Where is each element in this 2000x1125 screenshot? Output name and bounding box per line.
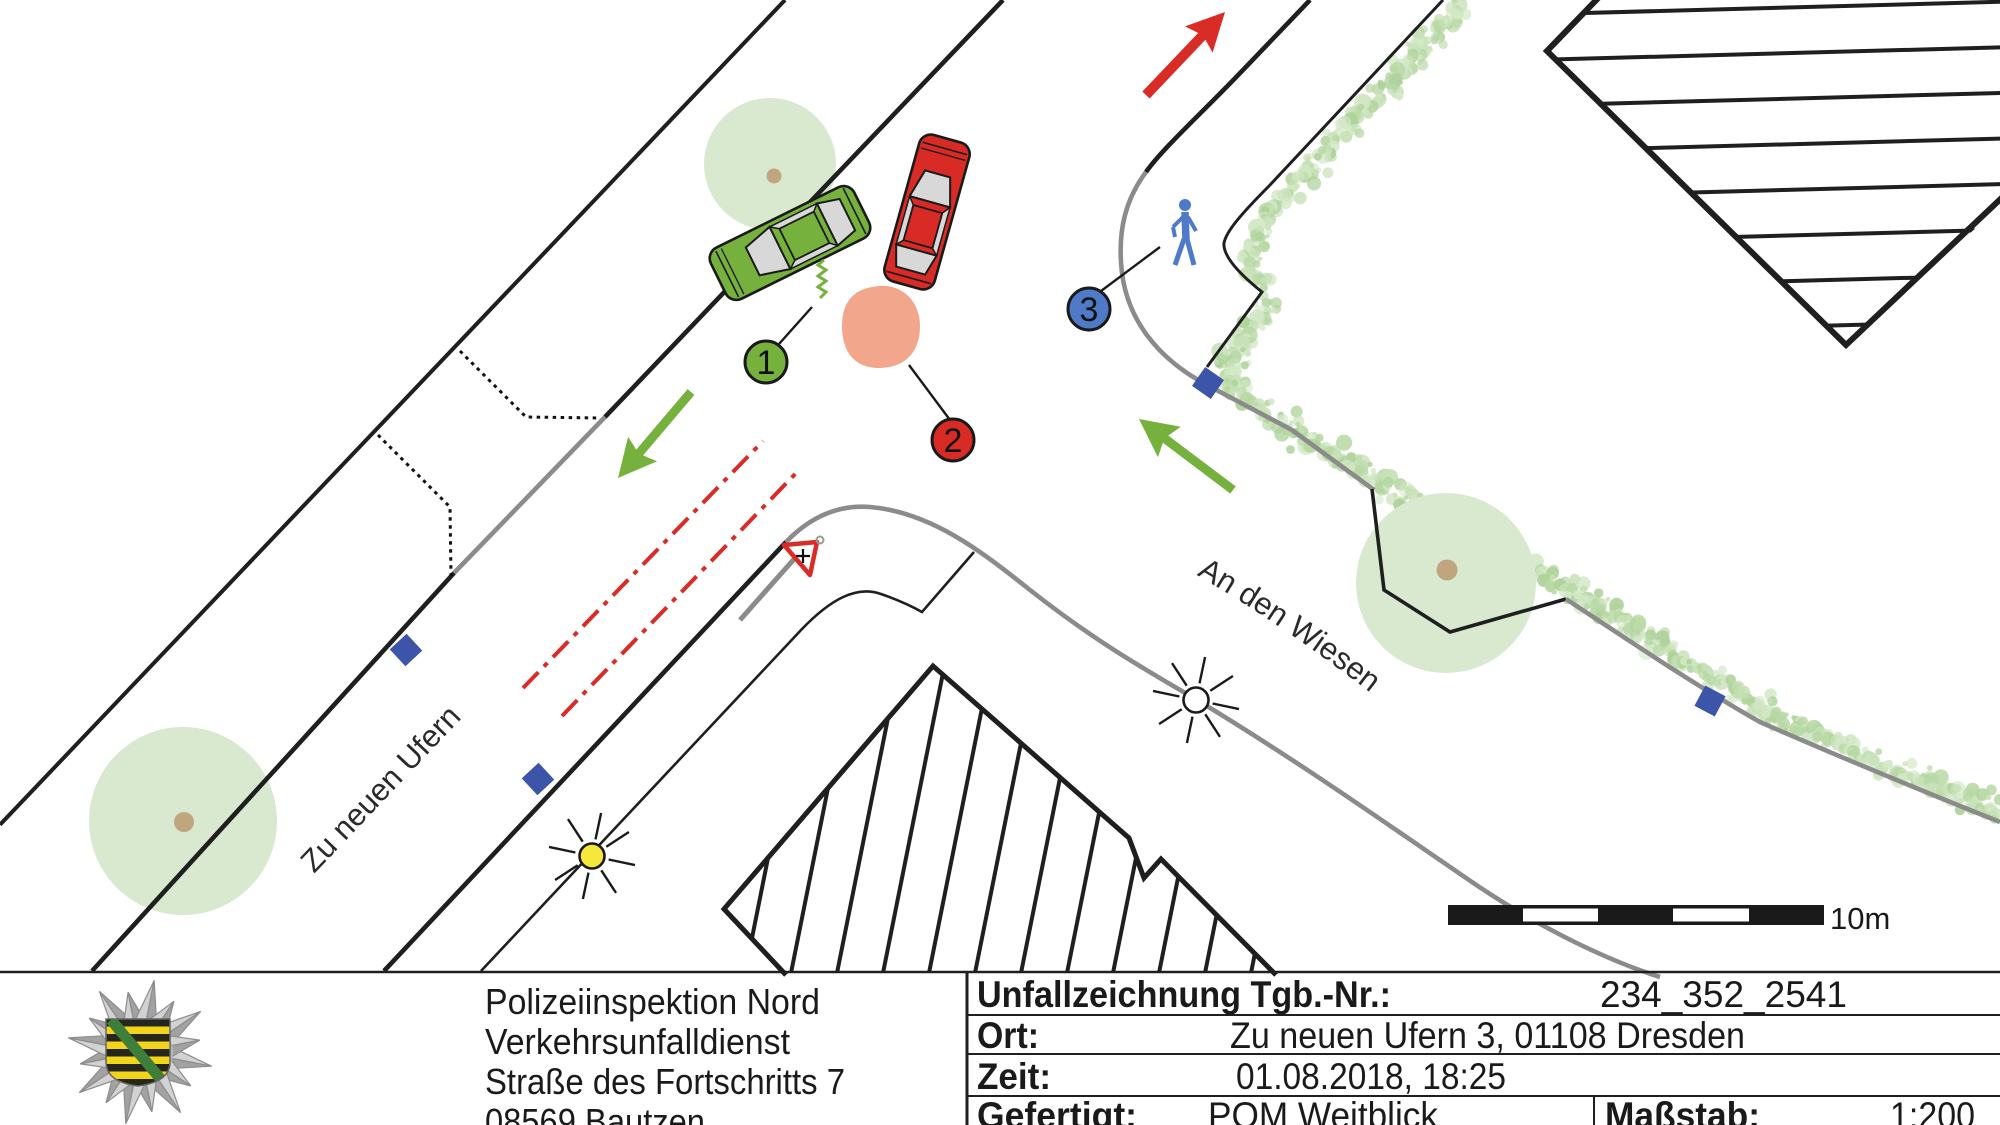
svg-text:Verkehrsunfalldienst: Verkehrsunfalldienst — [485, 1021, 790, 1062]
svg-text:Zu neuen Ufern 3, 01108 Dresde: Zu neuen Ufern 3, 01108 Dresden — [1230, 1015, 1745, 1056]
svg-text:Zeit:: Zeit: — [977, 1056, 1051, 1097]
svg-text:Polizeiinspektion Nord: Polizeiinspektion Nord — [485, 981, 820, 1022]
svg-text:10m: 10m — [1830, 901, 1890, 936]
svg-text:3: 3 — [1080, 291, 1099, 329]
svg-text:Unfallzeichnung Tgb.-Nr.:: Unfallzeichnung Tgb.-Nr.: — [977, 974, 1391, 1015]
svg-text:1:200: 1:200 — [1890, 1095, 1975, 1125]
svg-text:01.08.2018, 18:25: 01.08.2018, 18:25 — [1236, 1056, 1506, 1097]
svg-text:2: 2 — [944, 422, 963, 460]
svg-text:08569 Bautzen: 08569 Bautzen — [485, 1101, 705, 1125]
svg-text:Maßstab:: Maßstab: — [1605, 1095, 1760, 1125]
svg-text:Ort:: Ort: — [977, 1015, 1039, 1056]
svg-text:Straße des Fortschritts 7: Straße des Fortschritts 7 — [485, 1061, 845, 1102]
svg-text:1: 1 — [757, 344, 776, 382]
svg-text:234_352_2541: 234_352_2541 — [1600, 974, 1847, 1015]
svg-text:Gefertigt:: Gefertigt: — [977, 1095, 1137, 1125]
svg-text:POM Weitblick: POM Weitblick — [1208, 1095, 1438, 1125]
